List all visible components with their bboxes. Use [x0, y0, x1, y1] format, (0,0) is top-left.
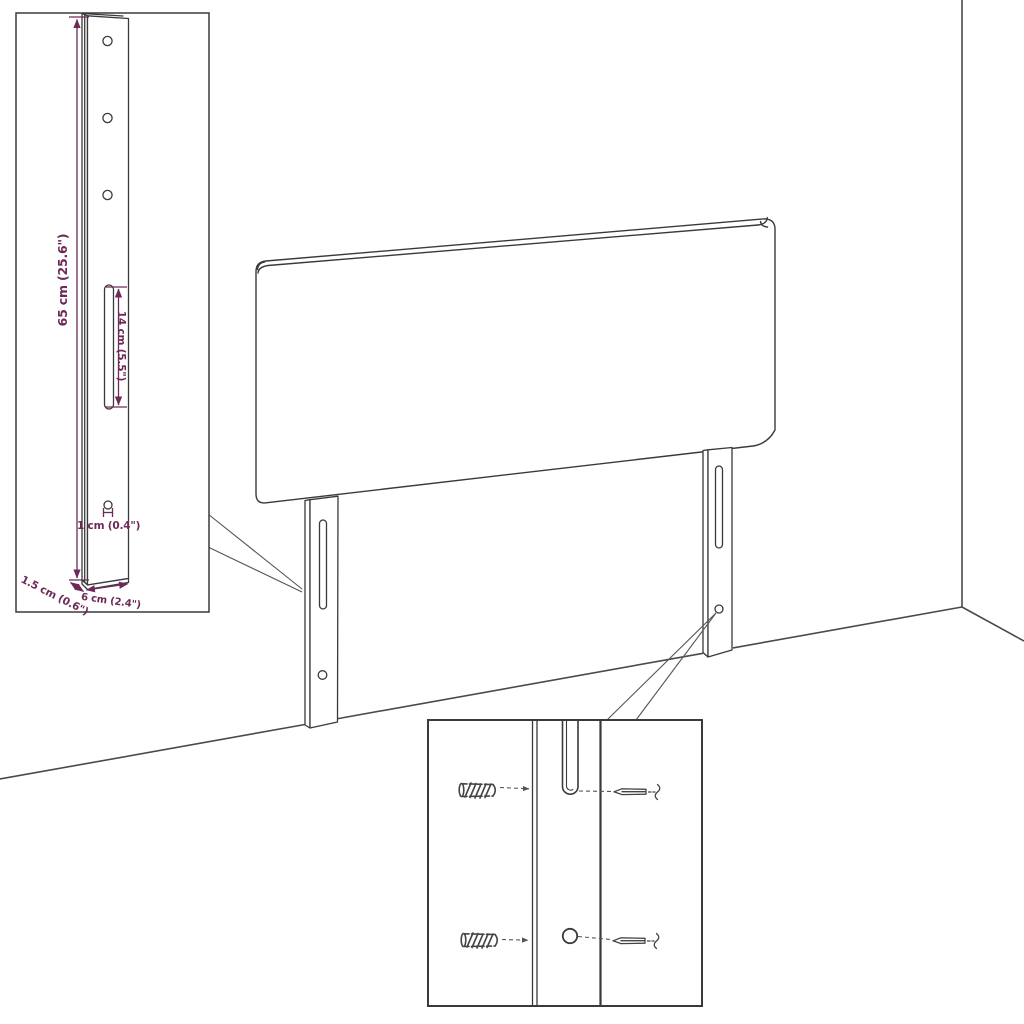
dimension-hole-diameter: 1 cm (0.4")	[77, 520, 140, 532]
mounting-hole-icon	[103, 113, 112, 122]
product-diagram: 65 cm (25.6") 14 cm (5.5") 1 cm (0.4") 1…	[0, 0, 1024, 1024]
floor-line-left	[733, 607, 962, 648]
diagram-canvas: 65 cm (25.6") 14 cm (5.5") 1 cm (0.4") 1…	[0, 0, 1024, 1024]
floor-line-right	[962, 607, 1024, 641]
bracket-detail-inset: 65 cm (25.6") 14 cm (5.5") 1 cm (0.4") 1…	[16, 13, 209, 618]
right-leg-slot	[716, 466, 723, 548]
left-leg-hole	[318, 671, 327, 680]
dimension-total-height: 65 cm (25.6")	[55, 234, 70, 327]
right-leg-side-face	[703, 450, 708, 657]
left-leg	[305, 496, 338, 728]
callout-lines	[208, 514, 716, 720]
floor-line-left	[0, 725, 305, 780]
left-leg-slot	[320, 520, 327, 609]
left-leg-side-face	[305, 500, 310, 728]
dimension-slot-length: 14 cm (5.5")	[115, 311, 127, 381]
bracket-drawing	[82, 14, 129, 590]
right-leg	[703, 448, 732, 658]
floor-line-left	[338, 653, 703, 718]
mounting-callout-line	[636, 613, 716, 720]
right-leg-hole	[715, 605, 723, 613]
headboard-panel	[256, 218, 775, 503]
bracket-small-hole	[104, 501, 112, 509]
headboard-outline	[256, 219, 775, 503]
mounting-hole-icon	[103, 190, 112, 199]
mounting-hole-icon	[103, 36, 112, 45]
mounting-detail-inset	[428, 720, 702, 1006]
mounting-callout-line	[607, 613, 716, 720]
mounting-inset-border	[428, 720, 702, 1006]
bracket-callout-line	[208, 547, 302, 592]
bracket-callout-line	[208, 514, 302, 589]
bracket-slot	[105, 285, 114, 409]
